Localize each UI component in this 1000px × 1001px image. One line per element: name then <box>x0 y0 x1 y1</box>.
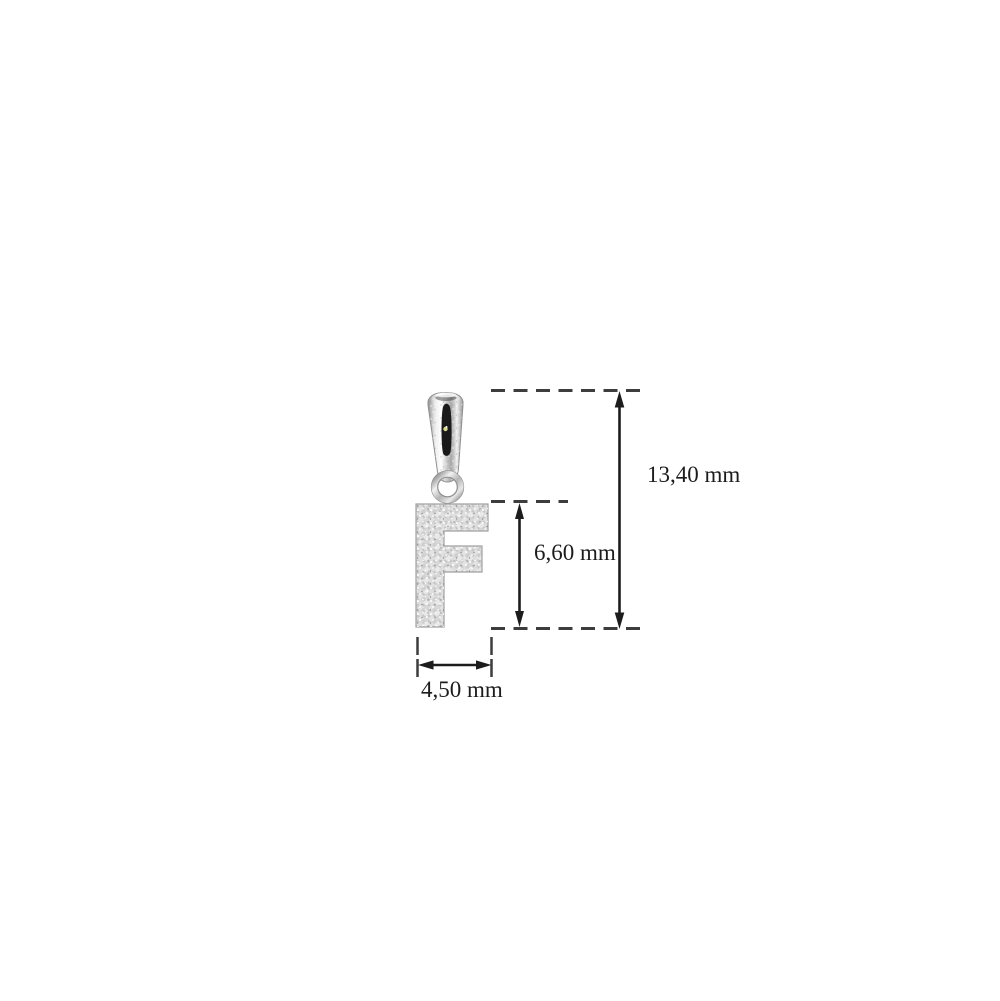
letter-height-label: 6,60 mm <box>534 541 616 564</box>
pendant-diagram-svg <box>0 0 1000 1001</box>
pendant <box>416 393 488 628</box>
letter-height-arrow <box>515 503 524 627</box>
pendant-bail <box>428 393 463 483</box>
letter-f-sparkle <box>416 504 488 627</box>
total-height-label: 13,40 mm <box>647 463 740 486</box>
bail-top-highlight <box>436 393 456 398</box>
bail-sparkle-glint <box>446 426 448 428</box>
pendant-letter-f <box>416 504 488 627</box>
pendant-jump-ring <box>432 471 464 503</box>
width-label: 4,50 mm <box>421 678 503 701</box>
width-arrow <box>418 660 492 669</box>
total-height-arrow <box>615 391 625 629</box>
product-dimension-diagram: 13,40 mm 6,60 mm 4,50 mm <box>0 0 1000 1001</box>
